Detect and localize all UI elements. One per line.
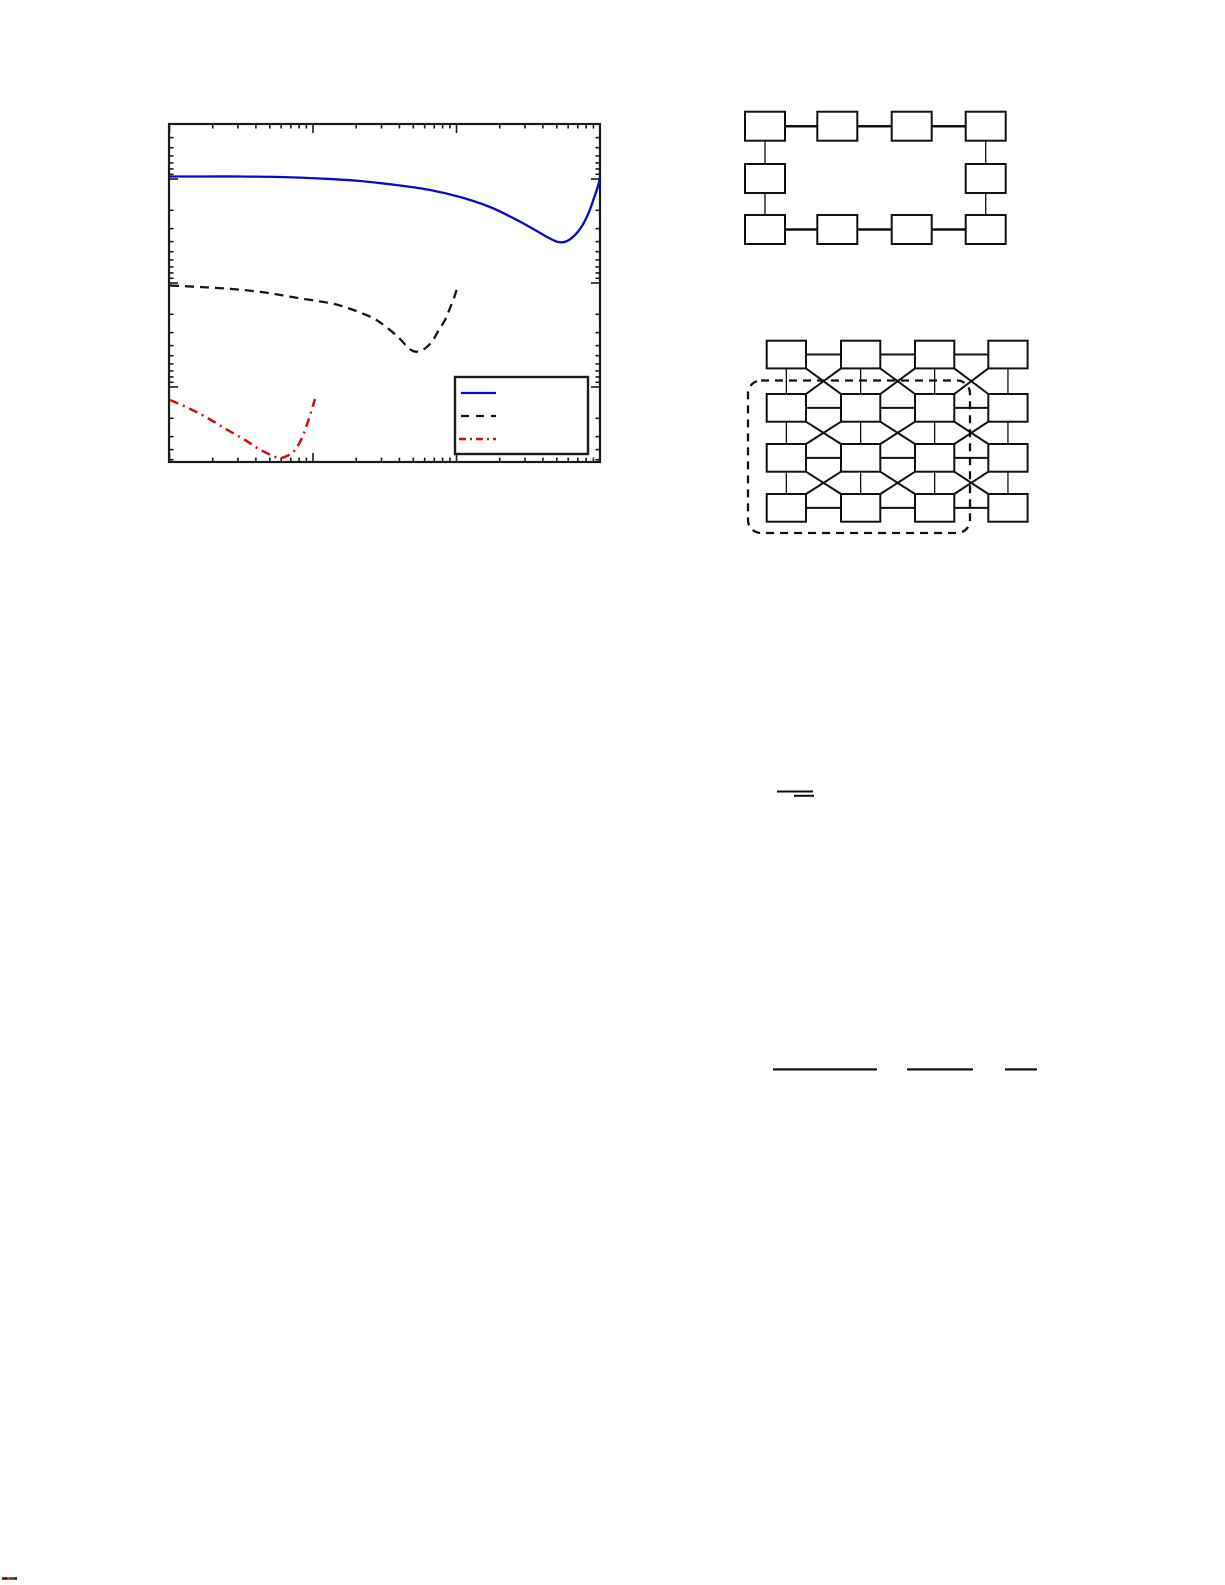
mesh-node: [841, 394, 880, 422]
mesh-node: [841, 494, 880, 522]
chart-legend: [455, 377, 588, 454]
artifact-pixel-segment: [12, 1577, 15, 1580]
ring-node: [892, 112, 932, 141]
equation-rule-marks: [773, 791, 1037, 1071]
mesh-node: [915, 341, 954, 369]
mesh-node: [767, 494, 806, 522]
mesh-node: [988, 494, 1027, 522]
fraction-bar: [794, 795, 814, 797]
ring-node: [966, 164, 1006, 193]
mesh-node: [988, 444, 1027, 472]
mesh-node: [767, 444, 806, 472]
red-dashdot-curve: [170, 399, 315, 458]
ring-node: [892, 215, 932, 244]
mesh-node: [841, 444, 880, 472]
corner-artifact-strip: [2, 1577, 17, 1580]
fraction-bar: [777, 791, 813, 793]
blue-solid-curve: [170, 176, 600, 242]
artifact-pixel-segment: [7, 1577, 10, 1580]
artifact-pixel-segment: [10, 1577, 12, 1580]
black-dashed-curve: [170, 285, 458, 352]
ring-node: [817, 112, 857, 141]
mesh-topology-diagram: [748, 341, 1028, 533]
legend-box: [455, 377, 588, 454]
ring-topology-diagram: [745, 112, 1006, 244]
ring-node: [817, 215, 857, 244]
fraction-bar: [773, 1068, 877, 1070]
ring-node: [745, 164, 785, 193]
artifact-pixel-segment: [16, 1577, 18, 1580]
mesh-node: [767, 341, 806, 369]
ring-nodes: [745, 112, 1006, 244]
mesh-node: [767, 394, 806, 422]
ring-links: [765, 126, 986, 229]
paper-page: [0, 0, 1225, 1585]
mesh-links: [786, 355, 1008, 508]
artifact-pixel-segment: [5, 1577, 7, 1580]
artifact-pixel-segment: [2, 1577, 5, 1580]
mesh-node: [915, 444, 954, 472]
mesh-node: [988, 341, 1027, 369]
figures-svg: [0, 0, 1225, 1585]
artifact-pixel-segment: [14, 1577, 16, 1580]
mesh-nodes: [767, 341, 1028, 522]
ring-node: [966, 215, 1006, 244]
ring-node: [745, 112, 785, 141]
mesh-node: [841, 341, 880, 369]
ring-node: [745, 215, 785, 244]
fraction-bar: [907, 1068, 973, 1070]
mesh-node: [988, 394, 1027, 422]
fraction-bar: [1005, 1068, 1037, 1070]
mesh-node: [915, 394, 954, 422]
ring-node: [966, 112, 1006, 141]
mesh-node: [915, 494, 954, 522]
